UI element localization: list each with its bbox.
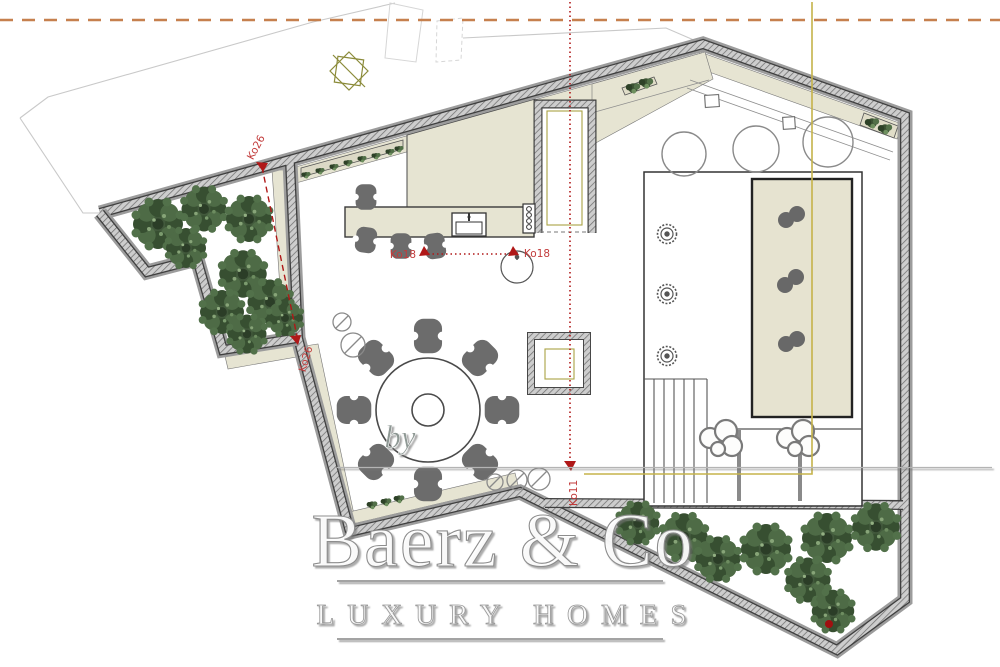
stair-shaft [538,104,592,233]
survey-marker-diamond-icon [330,52,368,90]
floor-plan-canvas: Ko26 Ko26 Ko18 Ko18 Ko11 by Baerz & Co L… [0,0,1000,667]
dimension-label: Ko26 [245,133,268,162]
red-survey-dot [825,620,833,628]
watermark-brand-text: Baerz & Co [311,499,694,583]
canopy-circle-icons [662,117,853,176]
small-square-fixtures [705,95,796,130]
watermark-tagline-text: LUXURY HOMES [317,599,700,631]
dimension-label: Ko18 [524,248,550,260]
dimension-label: Ko18 [390,249,416,261]
dimension-ko18: Ko18 Ko18 [390,246,550,261]
neighbor-outline-shapes [385,3,463,62]
dining-set [337,319,520,502]
watermark-by-text: by [384,420,416,456]
grill-icon [523,204,535,233]
site-plan-drawing: Ko26 Ko26 Ko18 Ko18 Ko11 by Baerz & Co L… [0,0,1000,667]
sink-icon [452,213,486,236]
square-planter [531,336,587,391]
